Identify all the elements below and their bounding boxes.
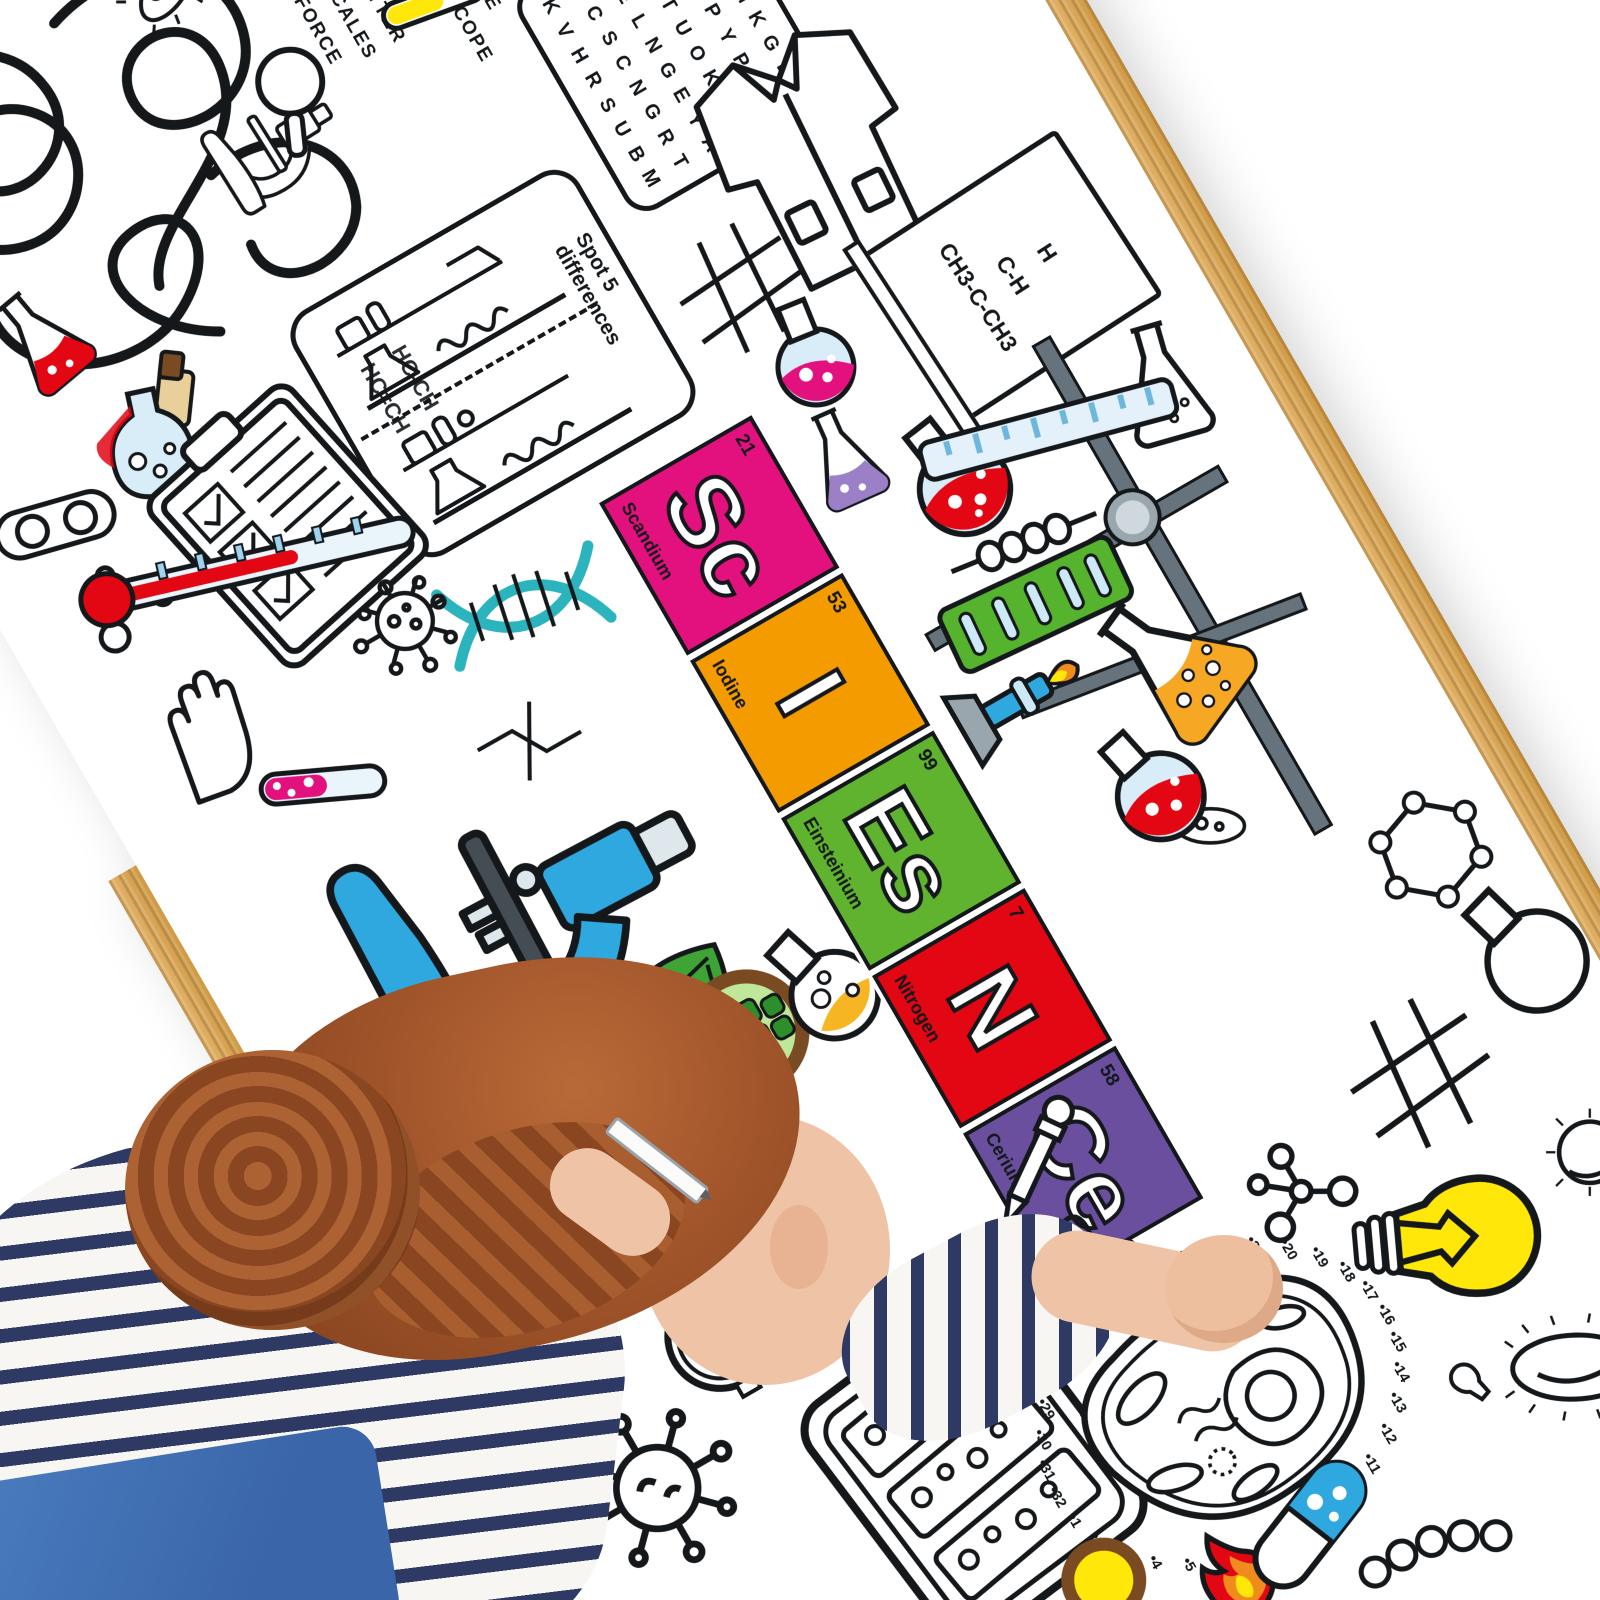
word-search-letter: P (699, 0, 726, 23)
dot-to-dot-number: 1 (1062, 1509, 1085, 1531)
element-symbol: N (931, 952, 1054, 1065)
word-search-letter: C (581, 2, 608, 26)
word-search-letter: L (625, 10, 651, 32)
word-search-letter: V (551, 19, 578, 42)
word-search-letter: R (579, 68, 606, 92)
child-fist (1165, 1235, 1283, 1343)
word-search-letter: G (653, 58, 681, 83)
light-bulb-icon (1339, 1155, 1551, 1322)
word-search-letter: B (622, 142, 649, 166)
element-number: 7 (1003, 903, 1027, 923)
paramecium-icon (1498, 1319, 1600, 1416)
word-search-letter: K (537, 0, 564, 18)
word-search-letter: C (609, 51, 636, 75)
dot-to-dot-number: 15 (1383, 1326, 1410, 1355)
element-symbol: I (760, 656, 861, 730)
child-hair-bun (125, 1050, 420, 1330)
word-search-letter: N (623, 76, 650, 100)
microbe-icon (1532, 1095, 1600, 1210)
word-search-letter: E (611, 0, 638, 8)
word-search-letter: N (639, 34, 666, 58)
element-name: Iodine (707, 656, 752, 712)
word-search-letter: U (608, 118, 635, 142)
word-search-letter: Y (713, 25, 740, 48)
product-photo-stage: FORCESCALESMATTERHEATMICROSCOPEMEASURE K… (0, 0, 1600, 1600)
formula-line: C-H (990, 250, 1035, 299)
word-search-letter: K (742, 7, 769, 31)
word-search-letter: M (636, 166, 664, 192)
word-search-letter: O (683, 41, 711, 66)
element-number: 53 (821, 588, 851, 617)
word-search-letter: R (652, 125, 679, 149)
child-ear (770, 1205, 828, 1289)
tic-tac-toe-grid (1326, 979, 1515, 1168)
word-search-letter: S (594, 93, 621, 116)
word-search-letter: M (727, 0, 755, 7)
dot-to-dot-number: 31 (1033, 1454, 1060, 1483)
formula-line: H (1031, 238, 1063, 267)
word-search-letter: T (667, 151, 693, 173)
word-search-letter: T (655, 0, 681, 15)
bead-chain-icon (1346, 1497, 1525, 1596)
word-search-letter: E (567, 0, 594, 1)
word-search-letter: U (669, 17, 696, 41)
word-search-letter: H (565, 44, 592, 68)
element-symbol: Sc (645, 457, 793, 613)
word-search-letter: G (637, 100, 665, 125)
word-search-letter: S (595, 27, 622, 50)
